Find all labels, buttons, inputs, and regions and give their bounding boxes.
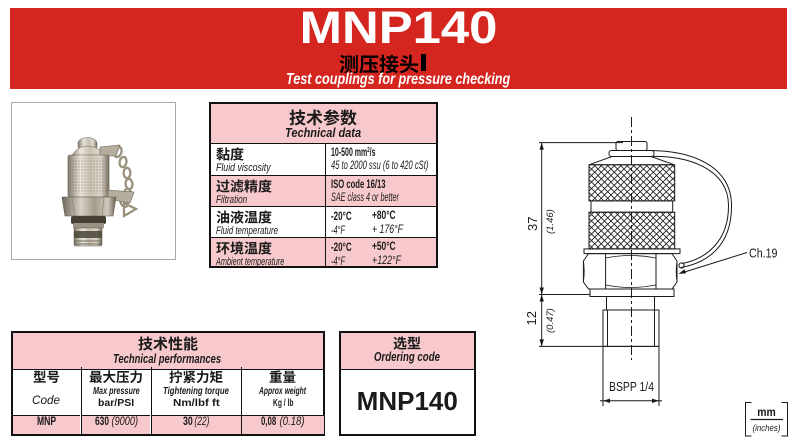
svg-text:12: 12 (524, 311, 539, 325)
svg-text:(1.46): (1.46) (545, 209, 556, 234)
svg-text:37: 37 (525, 217, 540, 231)
svg-text:mm: mm (757, 405, 776, 419)
svg-text:BSPP 1/4: BSPP 1/4 (609, 379, 654, 394)
svg-text:(inches): (inches) (753, 423, 781, 434)
svg-text:(0.47): (0.47) (545, 308, 556, 333)
svg-text:Ch.19: Ch.19 (749, 246, 778, 261)
